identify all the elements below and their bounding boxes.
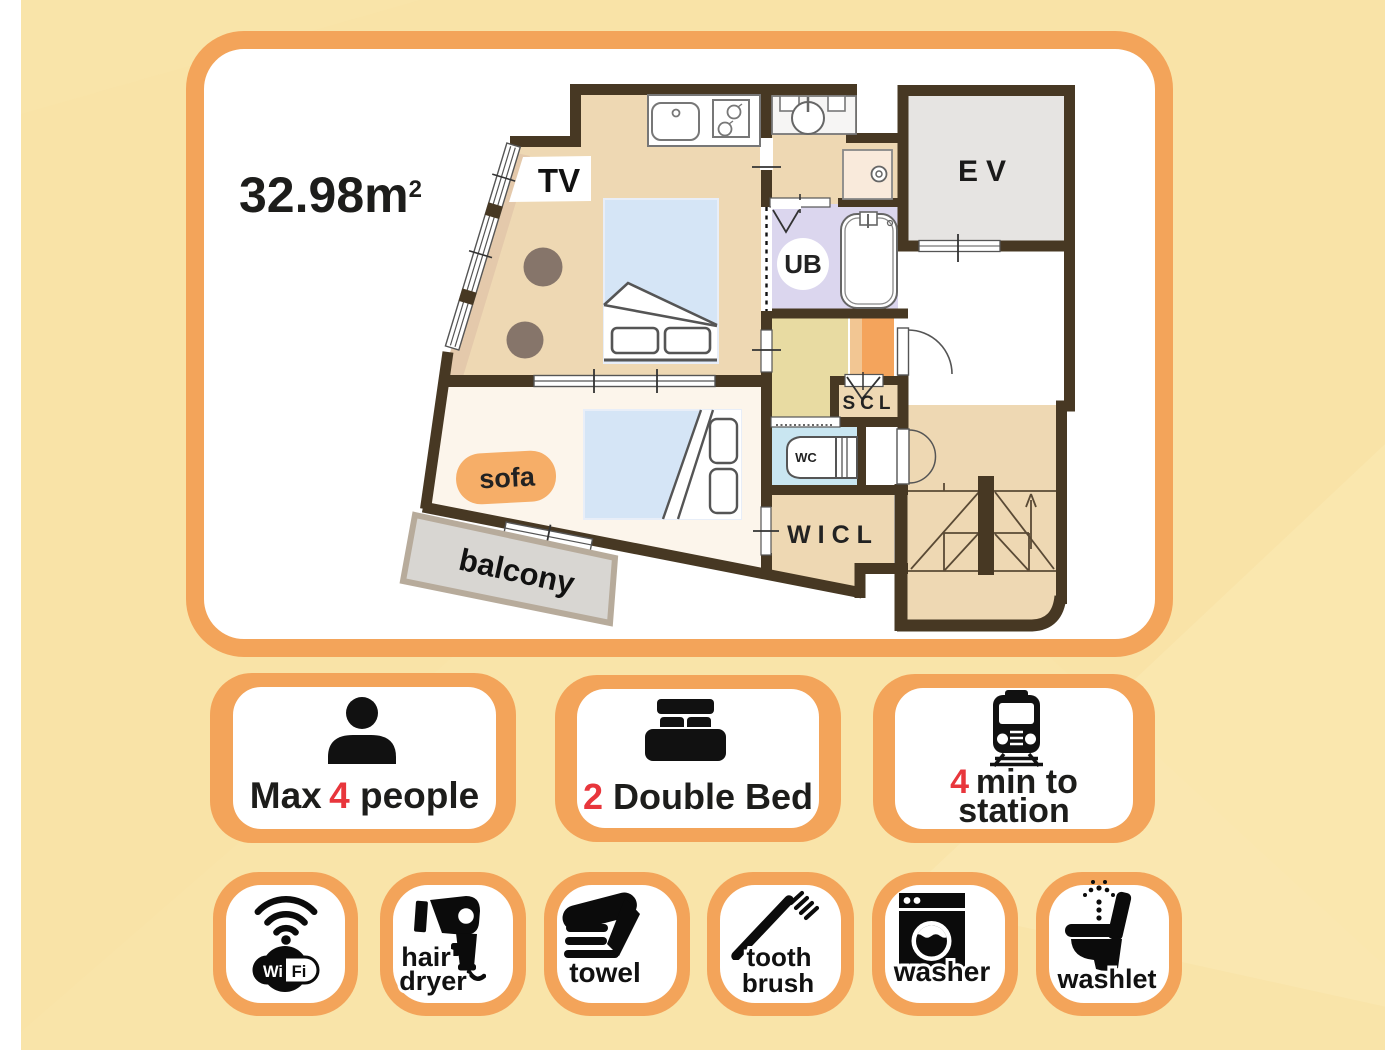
svg-text:EV: EV (958, 155, 1014, 188)
svg-text:UB: UB (784, 249, 822, 279)
svg-text:dryer: dryer (399, 966, 467, 996)
svg-text:washer: washer (893, 956, 991, 987)
svg-text:towel: towel (569, 957, 641, 988)
svg-text:WICL: WICL (787, 521, 879, 549)
svg-text:WC: WC (795, 450, 817, 465)
svg-text:TV: TV (538, 162, 580, 199)
svg-text:SCL: SCL (843, 393, 896, 414)
svg-text:Wi: Wi (263, 963, 283, 981)
svg-text:Fi: Fi (292, 963, 307, 981)
svg-text:washlet: washlet (1056, 964, 1156, 994)
svg-text:brush: brush (742, 968, 814, 998)
svg-text:sofa: sofa (479, 461, 537, 494)
